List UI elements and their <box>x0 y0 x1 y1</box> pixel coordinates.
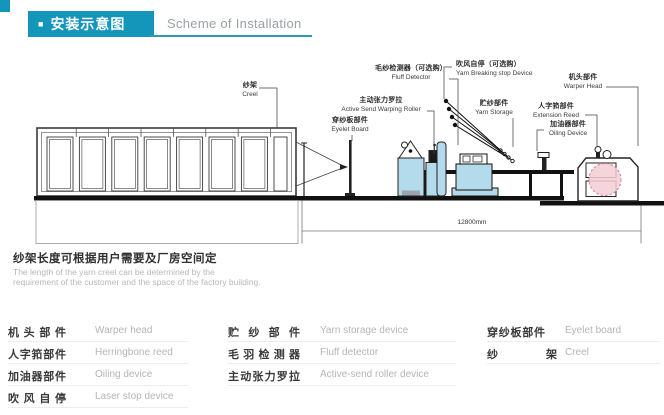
term-zh: 主动张力罗拉 <box>228 368 300 384</box>
term-en: Herringbone reed <box>95 347 173 358</box>
label-extension-reed: 人字筘部件Extension Reed <box>527 103 585 120</box>
term-zh: 人字筘部件 <box>8 346 66 362</box>
glossary-row: 人字筘部件Herringbone reed <box>8 342 188 364</box>
term-en: Eyelet board <box>565 325 621 336</box>
label-yarn-storage: 贮纱部件Yarn Storage <box>470 100 518 117</box>
term-en: Fluff detector <box>320 347 378 358</box>
label-eyelet-board: 穿纱板部件Eyelet Board <box>330 117 370 134</box>
term-en: Yarn storage device <box>320 325 408 336</box>
note-zh: 纱架长度可根据用户需要及厂房空间定 <box>13 250 217 266</box>
term-en: Creel <box>565 347 589 358</box>
creel-drawing <box>37 128 296 196</box>
page-title-zh: 安装示意图 <box>50 16 125 32</box>
brochure-page: ■安装示意图 Scheme of Installation <box>0 0 664 415</box>
yarn-guide-post <box>301 143 307 196</box>
yarn-direction-arrow <box>340 164 348 170</box>
page-title-en: Scheme of Installation <box>167 16 302 31</box>
glossary-column-1: 机头部件Warper head 人字筘部件Herringbone reed 加油… <box>8 320 188 408</box>
dimension-label: 12800mm <box>402 219 542 226</box>
glossary-row: 穿纱板部件Eyelet board <box>487 320 660 342</box>
glossary-row: 毛羽检测器Fluff detector <box>228 342 456 364</box>
header-divider <box>150 35 312 37</box>
term-zh: 吹风自停 <box>8 390 66 406</box>
floor-line <box>34 196 564 201</box>
note-en-line1: The length of the yarn creel can be dete… <box>13 267 215 277</box>
term-en: Active-send roller device <box>320 369 429 380</box>
glossary-column-3: 穿纱板部件Eyelet board 纱架Creel <box>487 320 660 364</box>
term-zh: 毛羽检测器 <box>228 346 300 362</box>
term-zh: 穿纱板部件 <box>487 324 545 340</box>
glossary-row: 纱架Creel <box>487 342 660 364</box>
label-fluff-detector: 毛纱检测器（可选购）Fluff Detector <box>370 65 452 82</box>
tension-post-drawing <box>437 142 446 196</box>
glossary-row: 吹风自停Laser stop device <box>8 386 188 408</box>
corner-accent-square <box>0 0 10 12</box>
yarn-path-lines <box>296 142 345 186</box>
oiling-device-drawing <box>538 153 549 171</box>
label-creel: 纱架Creel <box>230 82 270 99</box>
glossary-row: 机头部件Warper head <box>8 320 188 342</box>
term-en: Warper head <box>95 325 152 336</box>
term-en: Laser stop device <box>95 391 173 402</box>
bullet-square-icon: ■ <box>38 19 43 29</box>
glossary-row: 贮纱部件Yarn storage device <box>228 320 456 342</box>
dimension-lines <box>36 201 641 244</box>
term-zh: 加油器部件 <box>8 368 66 384</box>
label-active-roller: 主动张力罗拉Active Send Warping Roller <box>335 97 427 114</box>
term-en: Oiling device <box>95 369 152 380</box>
glossary-row: 加油器部件Oiling device <box>8 364 188 386</box>
active-roller-drawing <box>398 141 424 196</box>
eyelet-board-drawing <box>345 140 355 197</box>
glossary-column-2: 贮纱部件Yarn storage device 毛羽检测器Fluff detec… <box>228 320 456 386</box>
note-en-line2: requirement of the customer and the spac… <box>13 277 261 287</box>
warper-head-drawing <box>578 151 638 202</box>
page-title-banner: ■安装示意图 <box>28 11 154 37</box>
label-yarn-breaking-stop: 吹风自停（可选购）Yarn Breaking stop Device <box>456 61 551 78</box>
term-zh: 贮纱部件 <box>228 324 300 340</box>
term-zh: 机头部件 <box>8 324 66 340</box>
beam-circle <box>589 164 621 196</box>
term-zh: 纱架 <box>487 346 557 362</box>
label-warper-head: 机头部件Warper Head <box>560 74 606 91</box>
glossary-row: 主动张力罗拉Active-send roller device <box>228 364 456 386</box>
label-oiling-device: 加油器部件Oiling Device <box>546 121 590 138</box>
